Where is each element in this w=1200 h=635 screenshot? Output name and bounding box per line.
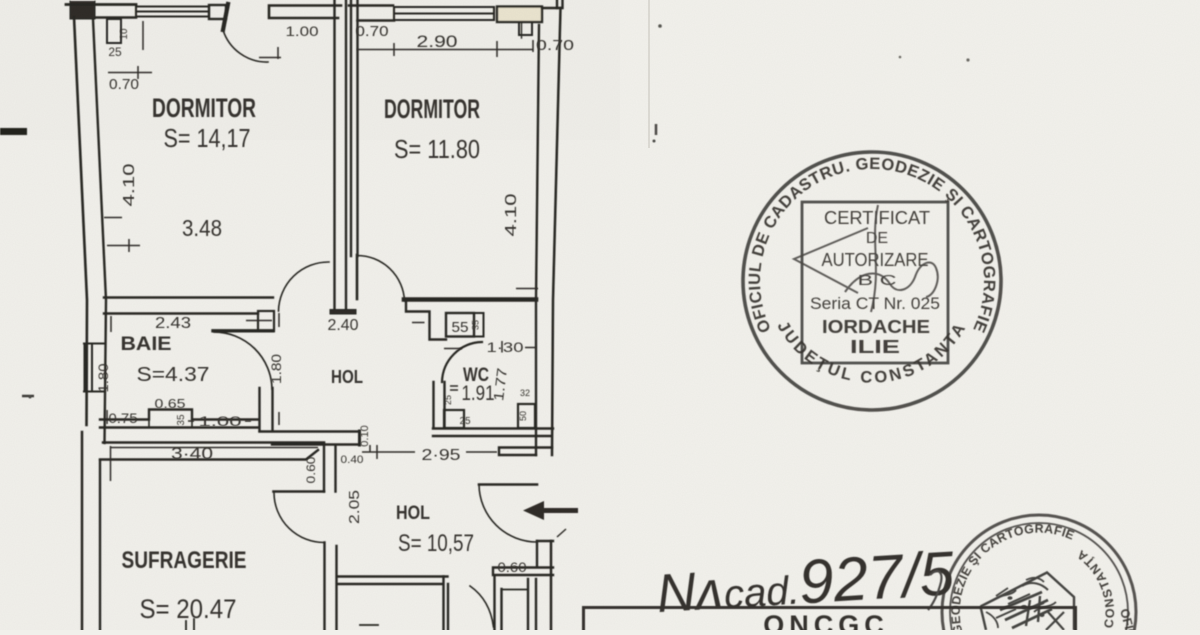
svg-text:ONCGC: ONCGC — [763, 610, 889, 630]
